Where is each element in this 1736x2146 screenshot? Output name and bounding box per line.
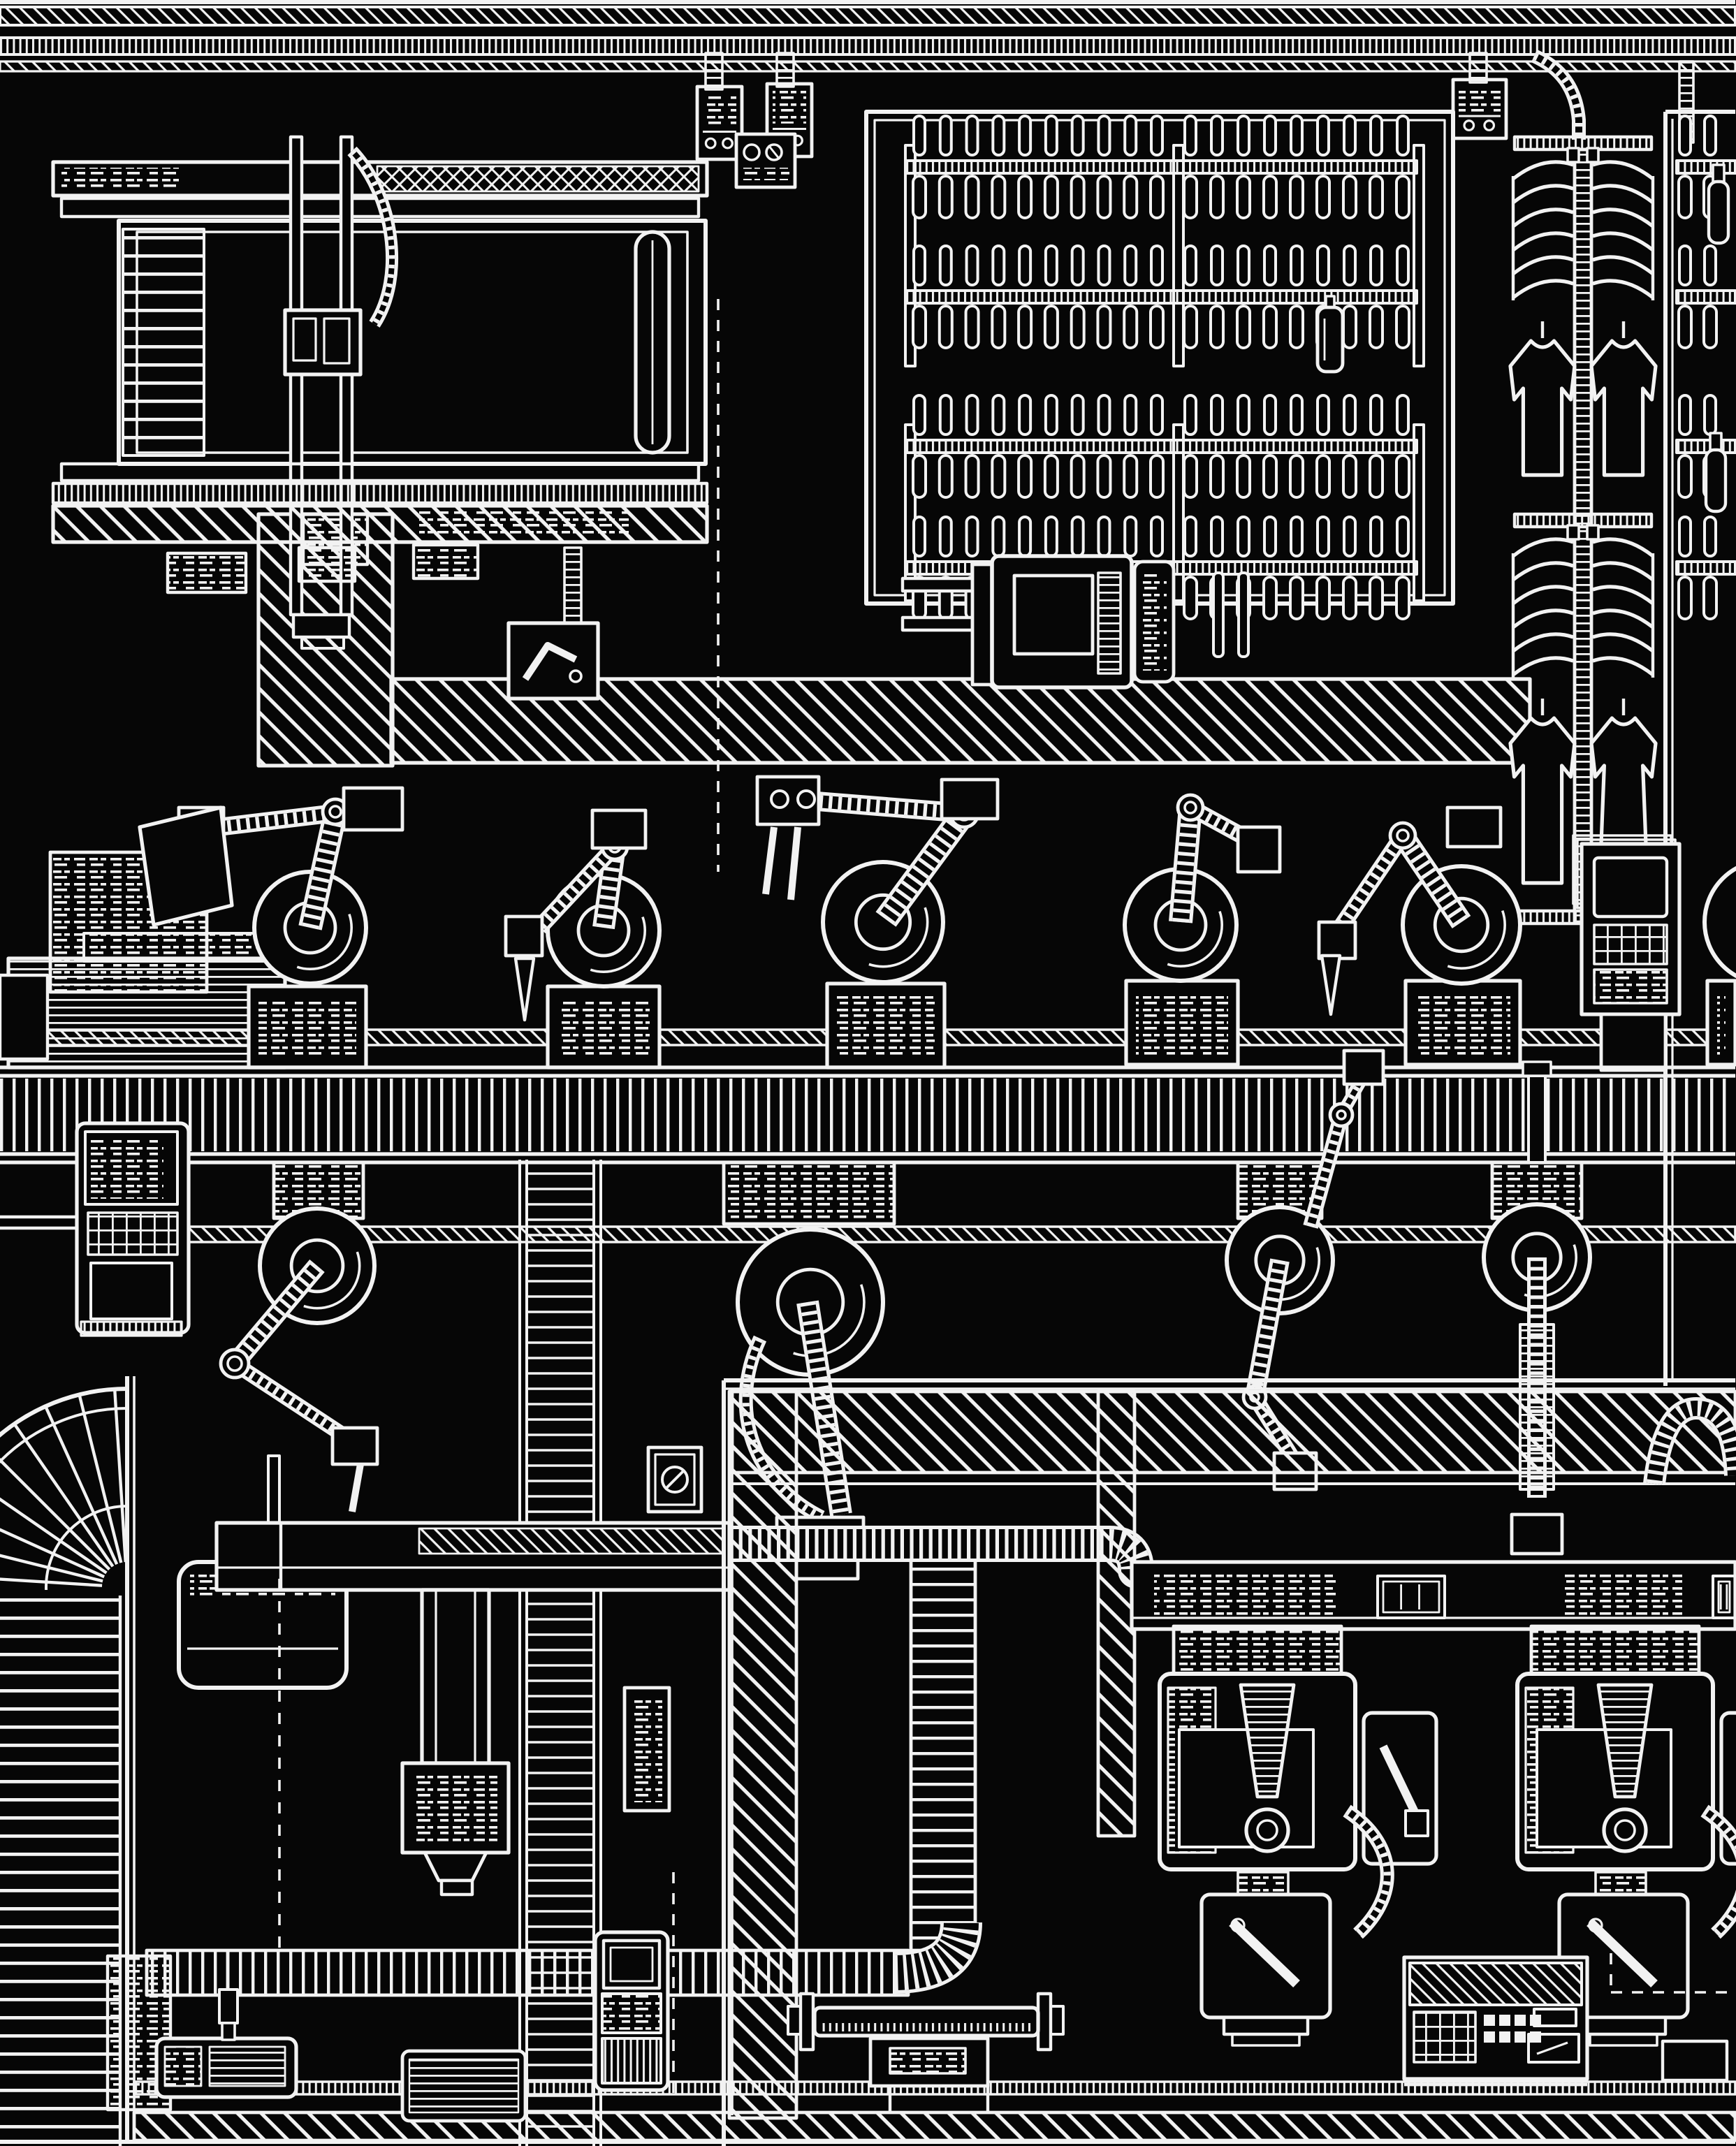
cell-mount <box>1174 1626 1341 1674</box>
control-console <box>1404 1957 1587 2085</box>
teach-pendant <box>77 1123 189 1336</box>
rack-rail <box>905 161 1417 173</box>
fork-tine <box>903 618 972 630</box>
hmi-keys <box>1594 925 1667 964</box>
console-hatch-panel <box>1410 1963 1582 2005</box>
pipe-junction-box <box>509 623 598 699</box>
drop-hose <box>706 53 722 89</box>
rack-post <box>1174 145 1183 366</box>
drop-hose <box>777 53 794 87</box>
carousel-plate <box>1515 137 1651 149</box>
pendant-keys <box>88 1213 177 1255</box>
factory-blueprint-illustration <box>0 0 1736 2146</box>
rack-rail <box>905 291 1417 303</box>
console-keypad <box>1414 2012 1475 2062</box>
hanging-mount <box>724 1162 894 1224</box>
hatch-border-band <box>0 7 1735 25</box>
bottle-tool <box>1706 450 1726 511</box>
hatched-wall <box>729 1392 796 2118</box>
status-cabinet <box>595 1932 668 2090</box>
long-rod-tool <box>1213 573 1223 657</box>
hatched-wall <box>1098 1392 1135 1836</box>
rack-post <box>1414 145 1424 366</box>
fork-tine <box>903 578 972 591</box>
press-column <box>422 1590 489 1763</box>
conveyor-belt <box>0 1067 1735 1162</box>
conveyor-slats <box>0 1079 1735 1151</box>
parts-tray <box>402 2051 525 2121</box>
fat-tool <box>1318 307 1343 372</box>
floor-hatch-band <box>134 2112 1735 2140</box>
bottle-tool <box>1709 182 1728 243</box>
cell-mount <box>1531 1626 1699 1674</box>
long-rod-tool <box>1239 573 1248 657</box>
rack-rail <box>905 440 1417 453</box>
